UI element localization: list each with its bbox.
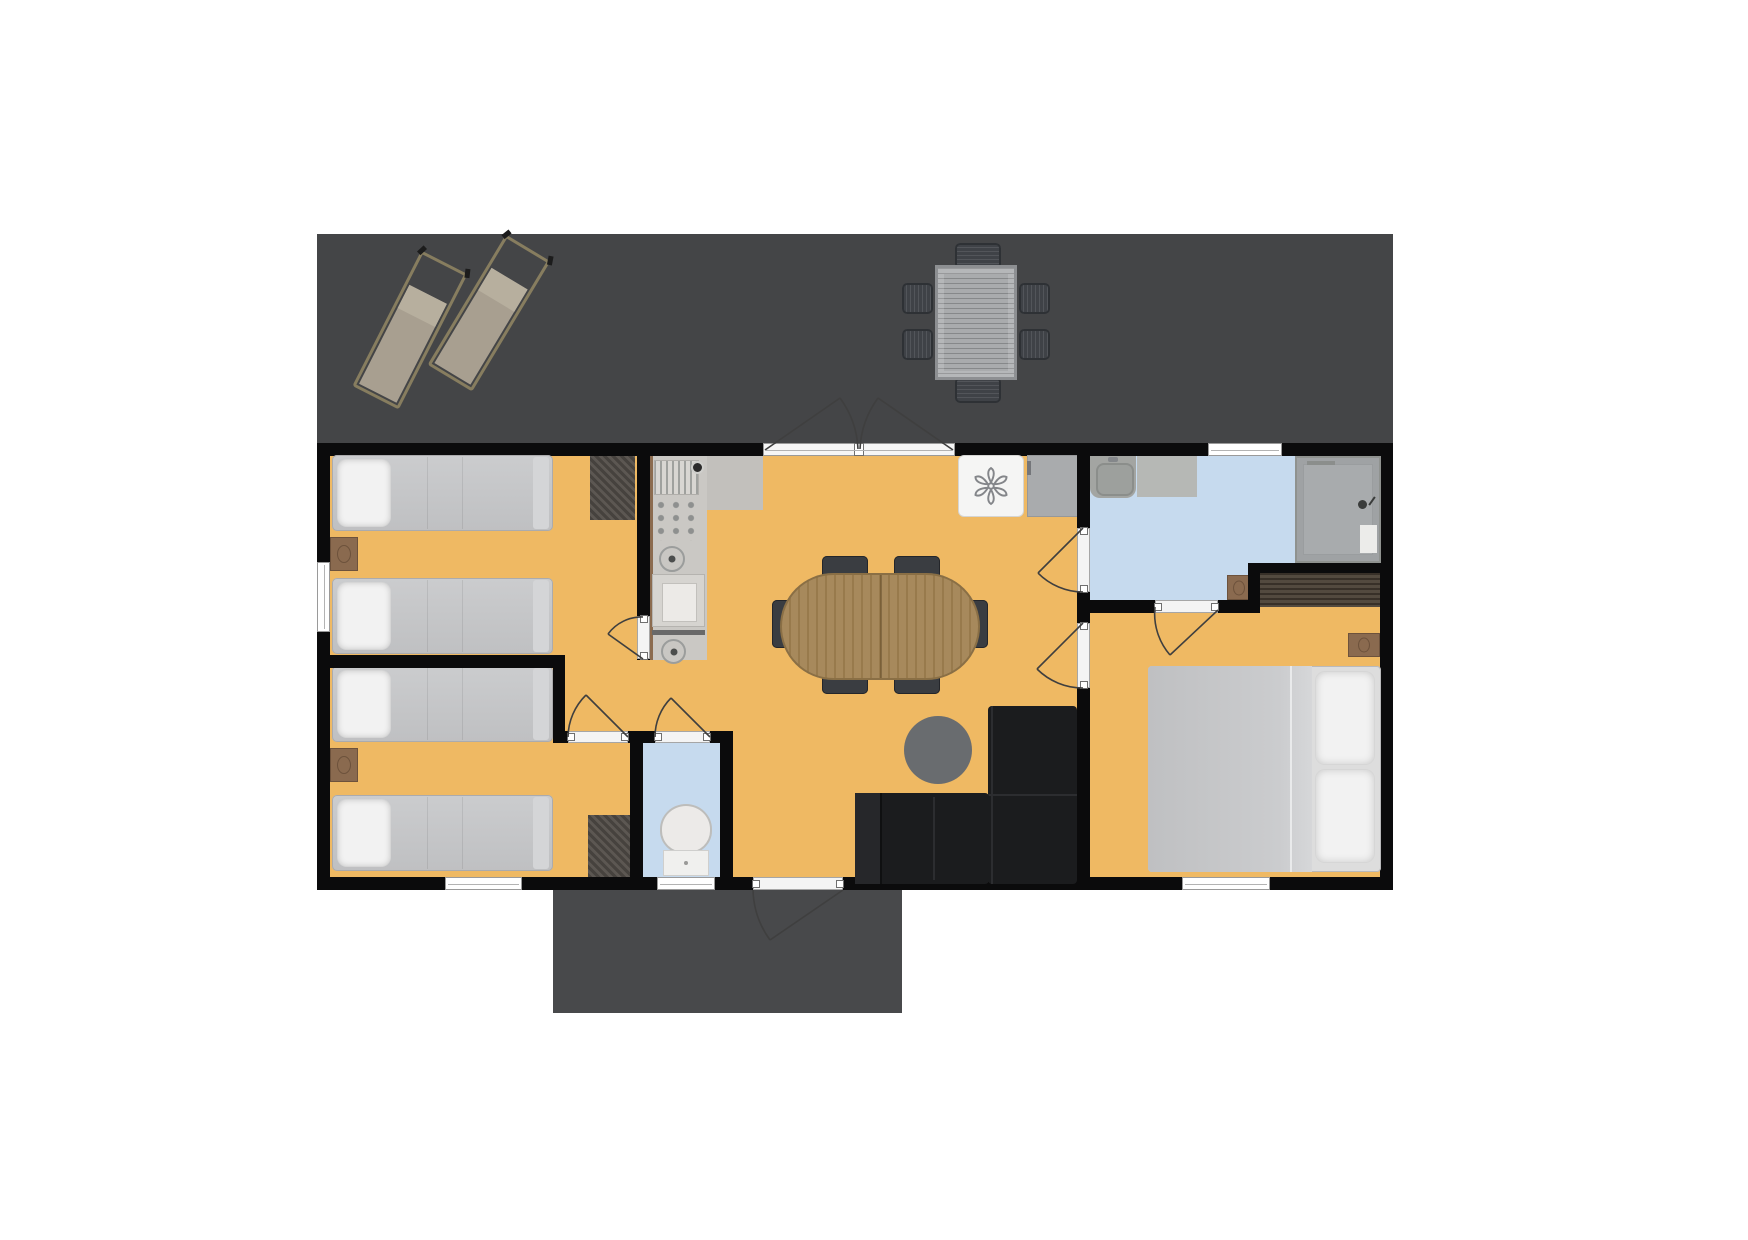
outdoor-chair [1019, 329, 1050, 360]
french-doors [763, 443, 955, 456]
door-threshold-master-bedroom [1077, 623, 1090, 688]
master-bedroom-window [1182, 877, 1270, 890]
corner-sofa-seat [855, 793, 989, 884]
oven [652, 574, 705, 627]
outdoor-chair [902, 329, 933, 360]
wall [1077, 688, 1090, 890]
toilet-bowl [660, 804, 712, 854]
dark-rug [588, 815, 630, 877]
entry-door-threshold [753, 877, 843, 890]
outdoor-chair [1019, 283, 1050, 314]
single-bed [332, 666, 553, 742]
door-threshold-bedroom-2 [568, 731, 628, 743]
corner-sofa-chaise [988, 706, 1077, 884]
double-bed [1148, 666, 1381, 872]
nightstand [330, 748, 358, 782]
wardrobe [1258, 573, 1380, 607]
bedroom-window [445, 877, 522, 890]
wall [553, 731, 568, 743]
kitchen-faucet [691, 461, 704, 474]
pillow [1316, 672, 1374, 764]
pillow [1316, 770, 1374, 862]
bath-mat [1227, 575, 1250, 600]
vanity-counter [1137, 456, 1197, 497]
wall [1260, 563, 1393, 573]
wall [1248, 563, 1260, 613]
door-threshold-bathroom [1077, 528, 1090, 592]
wall [1077, 443, 1090, 528]
walk-in-shower [1295, 456, 1381, 563]
shower-door-handle [1307, 461, 1335, 465]
tall-cabinet [1027, 455, 1078, 517]
wall [553, 655, 565, 743]
outdoor-chair [955, 377, 1001, 403]
oven-handle [652, 630, 705, 635]
nightstand [330, 537, 358, 571]
nightstand [1348, 633, 1380, 657]
door-threshold-toilet [655, 731, 710, 743]
wall [720, 731, 733, 877]
hob-knobs [655, 499, 699, 541]
floor-plan-canvas [0, 0, 1748, 1240]
outdoor-dining-table [935, 265, 1017, 380]
toilet-window [657, 877, 715, 890]
shower-head-icon [1358, 500, 1367, 509]
duvet [1148, 666, 1312, 872]
wall [1077, 592, 1090, 623]
fan-icon [959, 456, 1023, 516]
round-side-table [904, 716, 972, 784]
burner [661, 639, 686, 664]
entrance-deck [553, 884, 902, 1013]
single-bed [332, 795, 553, 871]
door-threshold-bathroom-bedroom [1155, 600, 1218, 613]
shower-shelf [1360, 525, 1377, 553]
wall [317, 655, 565, 668]
single-bed [332, 455, 553, 531]
shower-arm [1368, 496, 1375, 505]
kitchen-counter-top [707, 456, 763, 510]
outdoor-chair [902, 283, 933, 314]
heater-fan-unit [958, 455, 1024, 517]
toilet-tank [663, 850, 709, 876]
dark-rug [590, 456, 635, 520]
bedroom-window [317, 562, 330, 632]
wall [1090, 600, 1155, 613]
single-bed [332, 578, 553, 654]
door-threshold-bedroom-1 [637, 616, 650, 659]
washbasin [1090, 456, 1136, 498]
wall [630, 731, 643, 877]
oval-dining-table [780, 573, 980, 680]
bathroom-window [1208, 443, 1282, 456]
burner [659, 546, 685, 572]
